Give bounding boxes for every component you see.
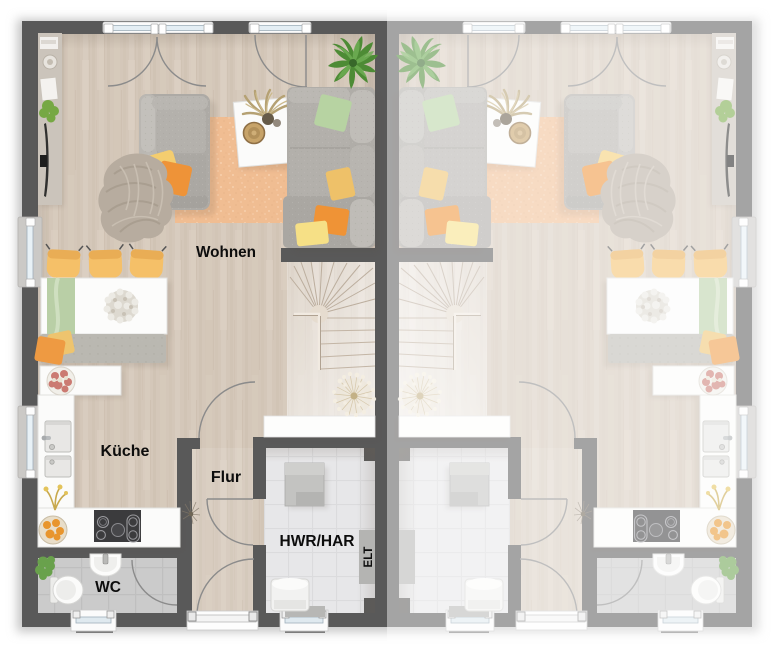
svg-text:ELT: ELT: [363, 547, 375, 568]
svg-text:HWR/HAR: HWR/HAR: [280, 533, 355, 550]
svg-text:Wohnen: Wohnen: [196, 244, 256, 261]
svg-text:Küche: Küche: [101, 443, 150, 460]
svg-text:WC: WC: [95, 579, 121, 596]
svg-text:Flur: Flur: [211, 469, 241, 486]
